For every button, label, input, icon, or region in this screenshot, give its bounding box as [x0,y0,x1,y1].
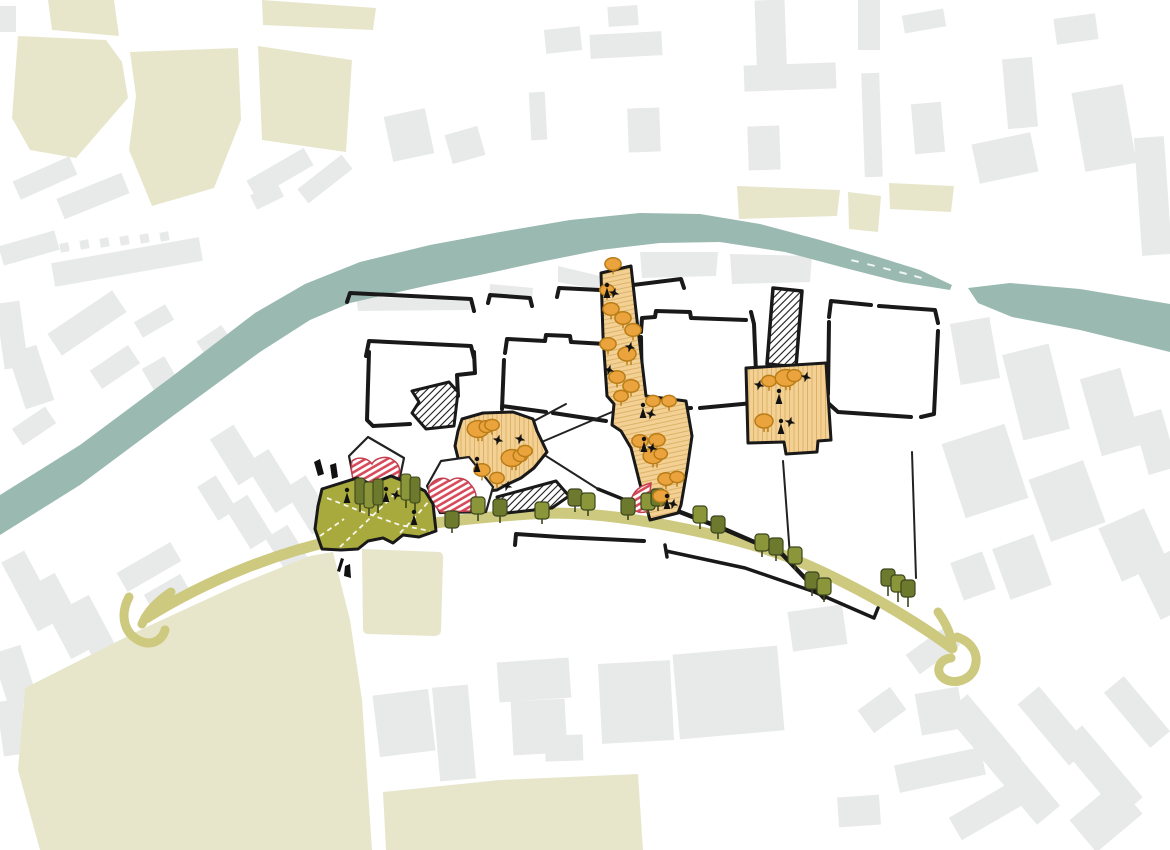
tree-canopy [625,324,641,337]
context-building [1053,13,1098,45]
context-building [0,230,60,265]
red-building-central [429,478,476,512]
context-building [992,534,1052,600]
river-right-segment [968,283,1170,352]
context-building [545,734,584,761]
tree-canopy [787,370,801,382]
tree-canopy [609,371,625,384]
person-head [384,487,388,491]
person-head [777,389,781,393]
context-building [372,689,435,757]
tree-canopy [762,375,776,386]
context-building [949,778,1031,841]
tree-canopy [615,312,631,325]
context-building [971,132,1038,184]
context-building [1080,368,1142,456]
context-building [0,6,16,32]
hatched-building-west [412,382,458,429]
context-building [744,62,837,91]
context-building [134,304,174,338]
context-building [432,685,476,782]
context-building [139,233,149,243]
context-building [787,604,847,651]
context-building [858,0,880,50]
context-building [1104,676,1170,748]
tree-canopy [614,390,628,401]
context-building [950,551,996,600]
context-building [1134,136,1170,256]
tree-canopy [373,479,383,505]
greenspace-area [12,36,128,158]
context-building [858,687,907,733]
tree-canopy [711,516,725,533]
tree-canopy [485,419,499,430]
tree-canopy [901,580,915,597]
tree-canopy [632,435,648,448]
tree-icon [535,502,549,524]
masterplan-sketch [0,0,1170,850]
context-building [1002,57,1038,129]
greenspace-area [737,186,840,219]
context-building [915,686,966,735]
masterplan-canvas [0,0,1170,850]
tree-canopy [600,338,616,351]
tree-canopy [410,477,420,503]
context-building [159,231,169,241]
context-building [589,31,662,59]
riverside-building [640,252,718,278]
context-building [8,345,54,409]
tree-canopy [621,498,635,515]
walking-figure-icon [344,564,351,578]
riverside-building [730,254,812,284]
greenspace-area [48,0,119,36]
tree-canopy [518,445,532,456]
tree-canopy [646,395,660,406]
context-building [627,107,661,152]
tree-canopy [568,489,582,506]
tree-canopy [755,414,773,428]
tree-canopy [490,472,504,483]
street-line [783,461,790,556]
context-building [13,156,78,199]
tree-canopy [623,380,639,393]
exclamation-mark-icon [330,463,338,479]
context-building [1071,84,1136,172]
tree-canopy [445,511,459,528]
tree-canopy [769,538,783,555]
tree-canopy [817,578,831,595]
tree-canopy [581,493,595,510]
context-building [902,8,946,33]
context-building [99,237,109,247]
greenspace-area [362,549,443,636]
context-building [497,658,572,703]
context-building [598,660,674,744]
context-building [607,5,638,27]
minor-street-lines [534,404,916,578]
tree-canopy [618,347,636,361]
block-northeast [828,301,938,417]
person-head [642,437,646,441]
context-building [12,407,56,446]
greenspace-area [262,0,376,30]
greenspace-area [18,552,372,850]
person-head [779,419,783,423]
tree-canopy [535,502,549,519]
tree-canopy [788,547,802,564]
person-head [665,494,669,498]
context-building [894,747,986,793]
context-building [1002,344,1070,441]
tree-canopy [670,471,684,482]
hatched-tower-north [767,288,802,367]
tree-canopy [755,534,769,551]
context-building [950,317,1000,385]
tree-canopy [654,448,667,459]
person-head [605,283,609,287]
context-building [747,125,781,170]
tree-canopy [605,258,621,271]
context-building [119,235,129,245]
tree-icon [901,580,915,607]
exclamation-mark-icon [314,459,324,476]
tree-canopy [493,499,507,516]
context-building [56,173,129,220]
context-building [79,239,89,249]
person-head [412,510,416,514]
street-line [912,452,916,578]
tree-icon [445,511,459,533]
public-green-space [315,474,436,550]
person-head [641,403,645,407]
tree-canopy [471,497,485,514]
context-building [1028,460,1105,542]
greenspace-area [383,774,643,850]
context-building [445,126,486,164]
greenspace-area [848,192,881,232]
greenspace-area [129,48,241,206]
context-building [942,424,1029,519]
greenspace-area [258,46,352,152]
south-street-line [515,534,644,545]
block-mid-east [641,311,757,411]
context-building [544,26,582,54]
tree-canopy [662,395,676,406]
context-building [911,102,945,154]
greenspace-area [889,183,954,212]
context-building [861,73,883,178]
person-head [345,488,349,492]
context-building [672,646,784,740]
tree-canopy [649,434,665,447]
context-building [837,795,881,828]
context-building [384,108,435,162]
context-building [47,290,126,355]
person-head [475,457,479,461]
tree-canopy [693,506,707,523]
context-building [529,92,547,141]
walking-figure-icon [337,558,344,572]
context-building [59,242,69,252]
context-building [90,345,140,389]
